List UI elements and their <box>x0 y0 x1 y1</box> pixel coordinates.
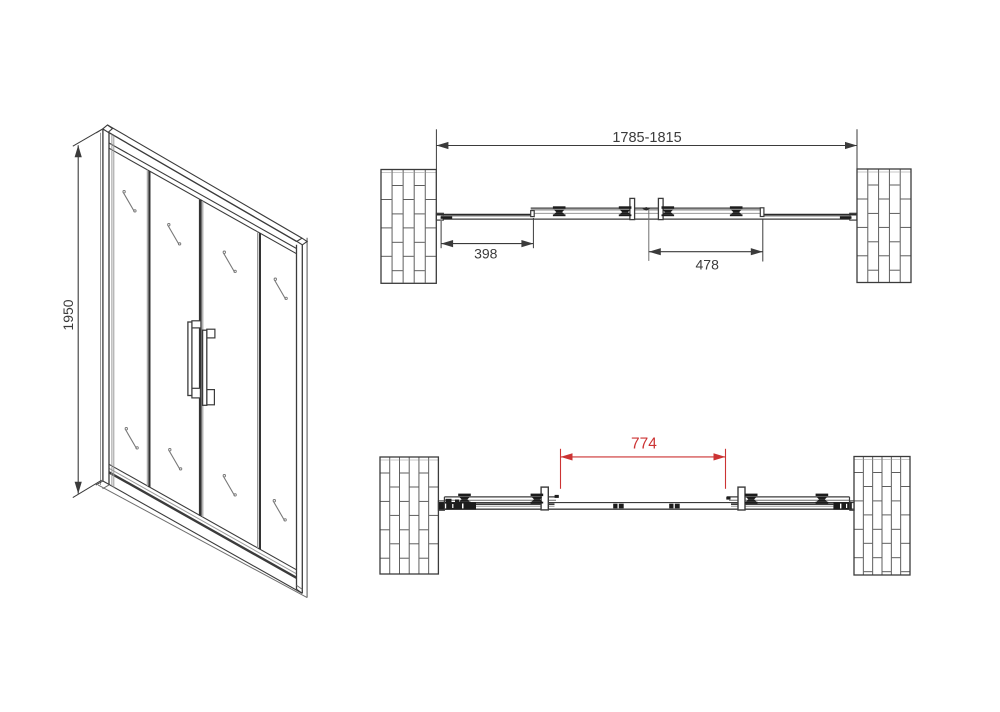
svg-text:478: 478 <box>696 256 720 272</box>
svg-text:398: 398 <box>474 246 498 262</box>
svg-text:774: 774 <box>631 436 657 453</box>
svg-text:1950: 1950 <box>60 299 76 330</box>
svg-text:1785-1815: 1785-1815 <box>612 130 681 146</box>
